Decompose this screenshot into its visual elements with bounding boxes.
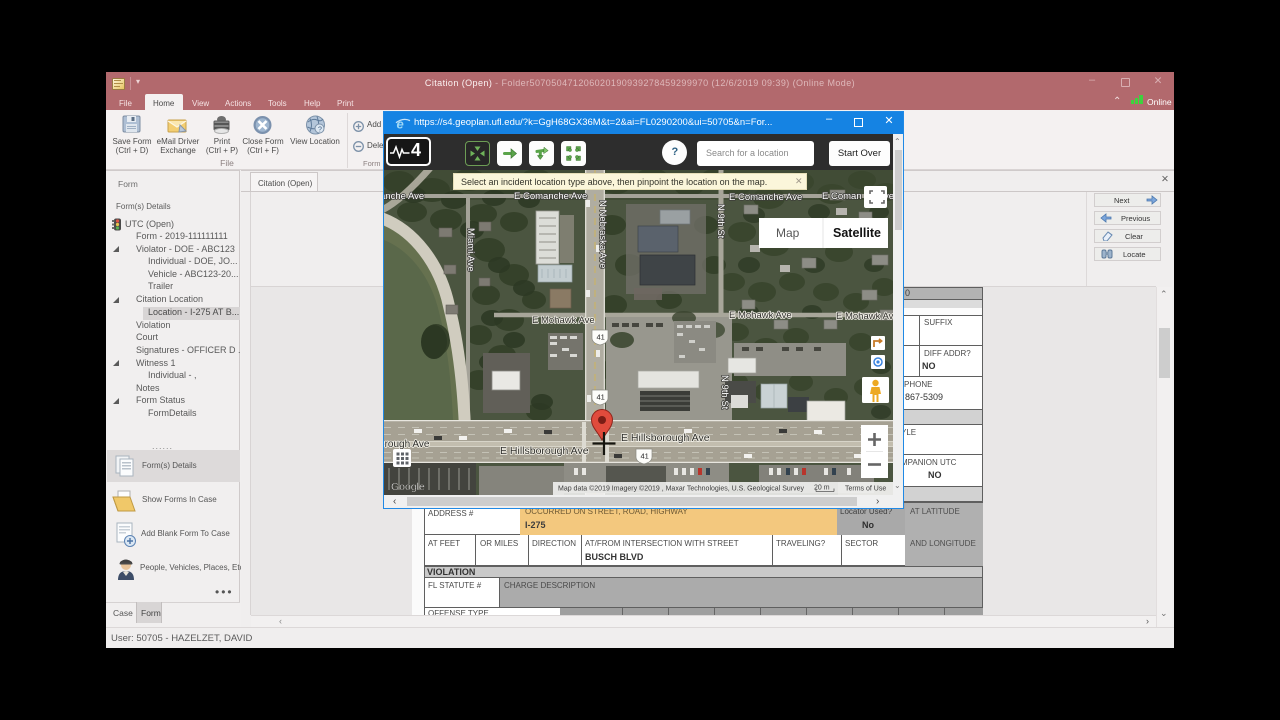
svg-text:e: e [397, 117, 404, 132]
svg-text:N 9th St: N 9th St [715, 204, 726, 239]
svg-text:41: 41 [597, 393, 605, 402]
svg-text:E Comanche Ave: E Comanche Ave [729, 192, 802, 203]
svg-text:41: 41 [641, 452, 649, 461]
svg-text:N 9th St: N 9th St [719, 375, 730, 410]
svg-text:E Mohawk Ave: E Mohawk Ave [836, 311, 893, 322]
svg-text:N Nebraska Ave: N Nebraska Ave [597, 200, 608, 268]
svg-text:Miami Ave: Miami Ave [465, 228, 476, 272]
svg-text:llsborough Ave: llsborough Ave [384, 439, 430, 450]
svg-text:20 m: 20 m [814, 485, 830, 492]
svg-text:Map data ©2019 Imagery ©2019 ,: Map data ©2019 Imagery ©2019 , Maxar Tec… [558, 485, 804, 493]
svg-text:Terms of Use: Terms of Use [845, 486, 886, 493]
svg-text:?: ? [318, 127, 322, 134]
svg-text:E Mohawk Ave: E Mohawk Ave [532, 315, 595, 326]
svg-text:Map: Map [776, 226, 800, 240]
svg-text:Google: Google [391, 481, 425, 493]
svg-text:E Comanche Ave: E Comanche Ave [514, 191, 587, 202]
svg-text:41: 41 [597, 333, 605, 342]
svg-text:E Coman: E Coman [822, 191, 862, 202]
svg-text:E Mohawk Ave: E Mohawk Ave [729, 310, 792, 321]
svg-text:E Hillsborough Ave: E Hillsborough Ave [621, 432, 710, 444]
svg-text:anche Ave: anche Ave [384, 191, 424, 202]
svg-text:E Hillsborough Ave: E Hillsborough Ave [500, 445, 589, 457]
svg-text:Satellite: Satellite [833, 226, 881, 240]
